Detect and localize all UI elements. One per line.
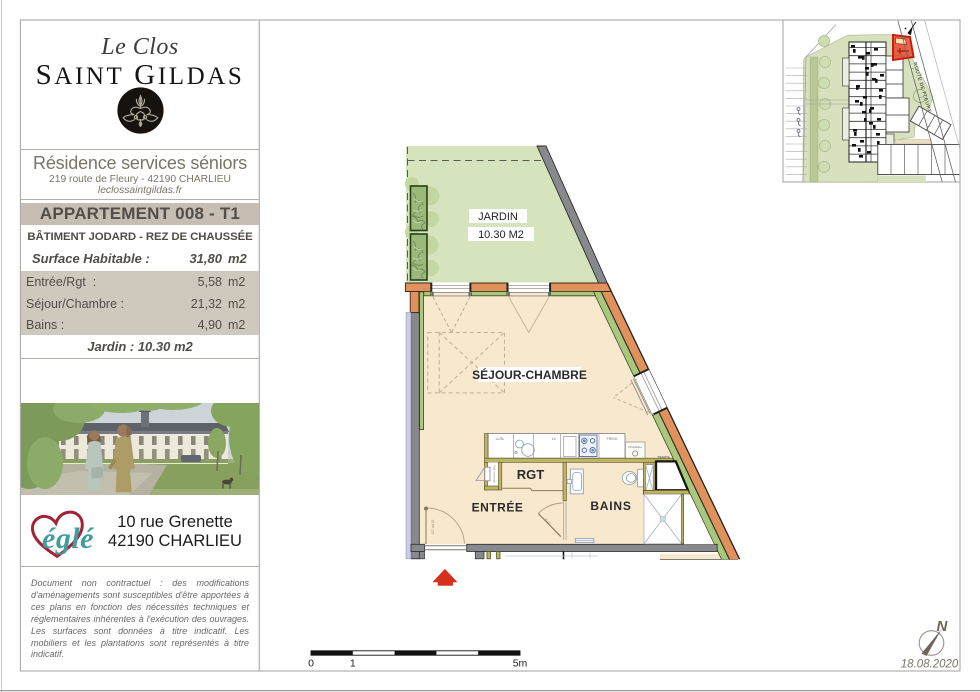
svg-text:JARDIN: JARDIN <box>478 211 518 223</box>
svg-text:LL/SL: LL/SL <box>496 437 505 441</box>
svg-text:SÉJOUR-CHAMBRE: SÉJOUR-CHAMBRE <box>472 367 587 382</box>
svg-text:N: N <box>937 618 949 635</box>
svg-text:Chaudière: Chaudière <box>628 445 642 449</box>
svg-text:93 PP 205: 93 PP 205 <box>431 520 435 535</box>
svg-text:ENTRÉE: ENTRÉE <box>472 500 524 515</box>
svg-text:BAINS: BAINS <box>590 499 631 513</box>
svg-text:1: 1 <box>350 658 356 670</box>
svg-text:Tabl. comptage: Tabl. comptage <box>493 465 497 483</box>
svg-text:10.30 M2: 10.30 M2 <box>478 229 524 241</box>
svg-text:églé: églé <box>42 522 95 555</box>
svg-text:TRAPPE: TRAPPE <box>657 455 669 459</box>
svg-text:0: 0 <box>308 658 314 670</box>
svg-text:RGT: RGT <box>517 467 545 482</box>
svg-text:5m: 5m <box>513 658 528 670</box>
svg-text:FRIGO: FRIGO <box>607 437 618 441</box>
svg-text:18.08.2020: 18.08.2020 <box>901 659 959 671</box>
